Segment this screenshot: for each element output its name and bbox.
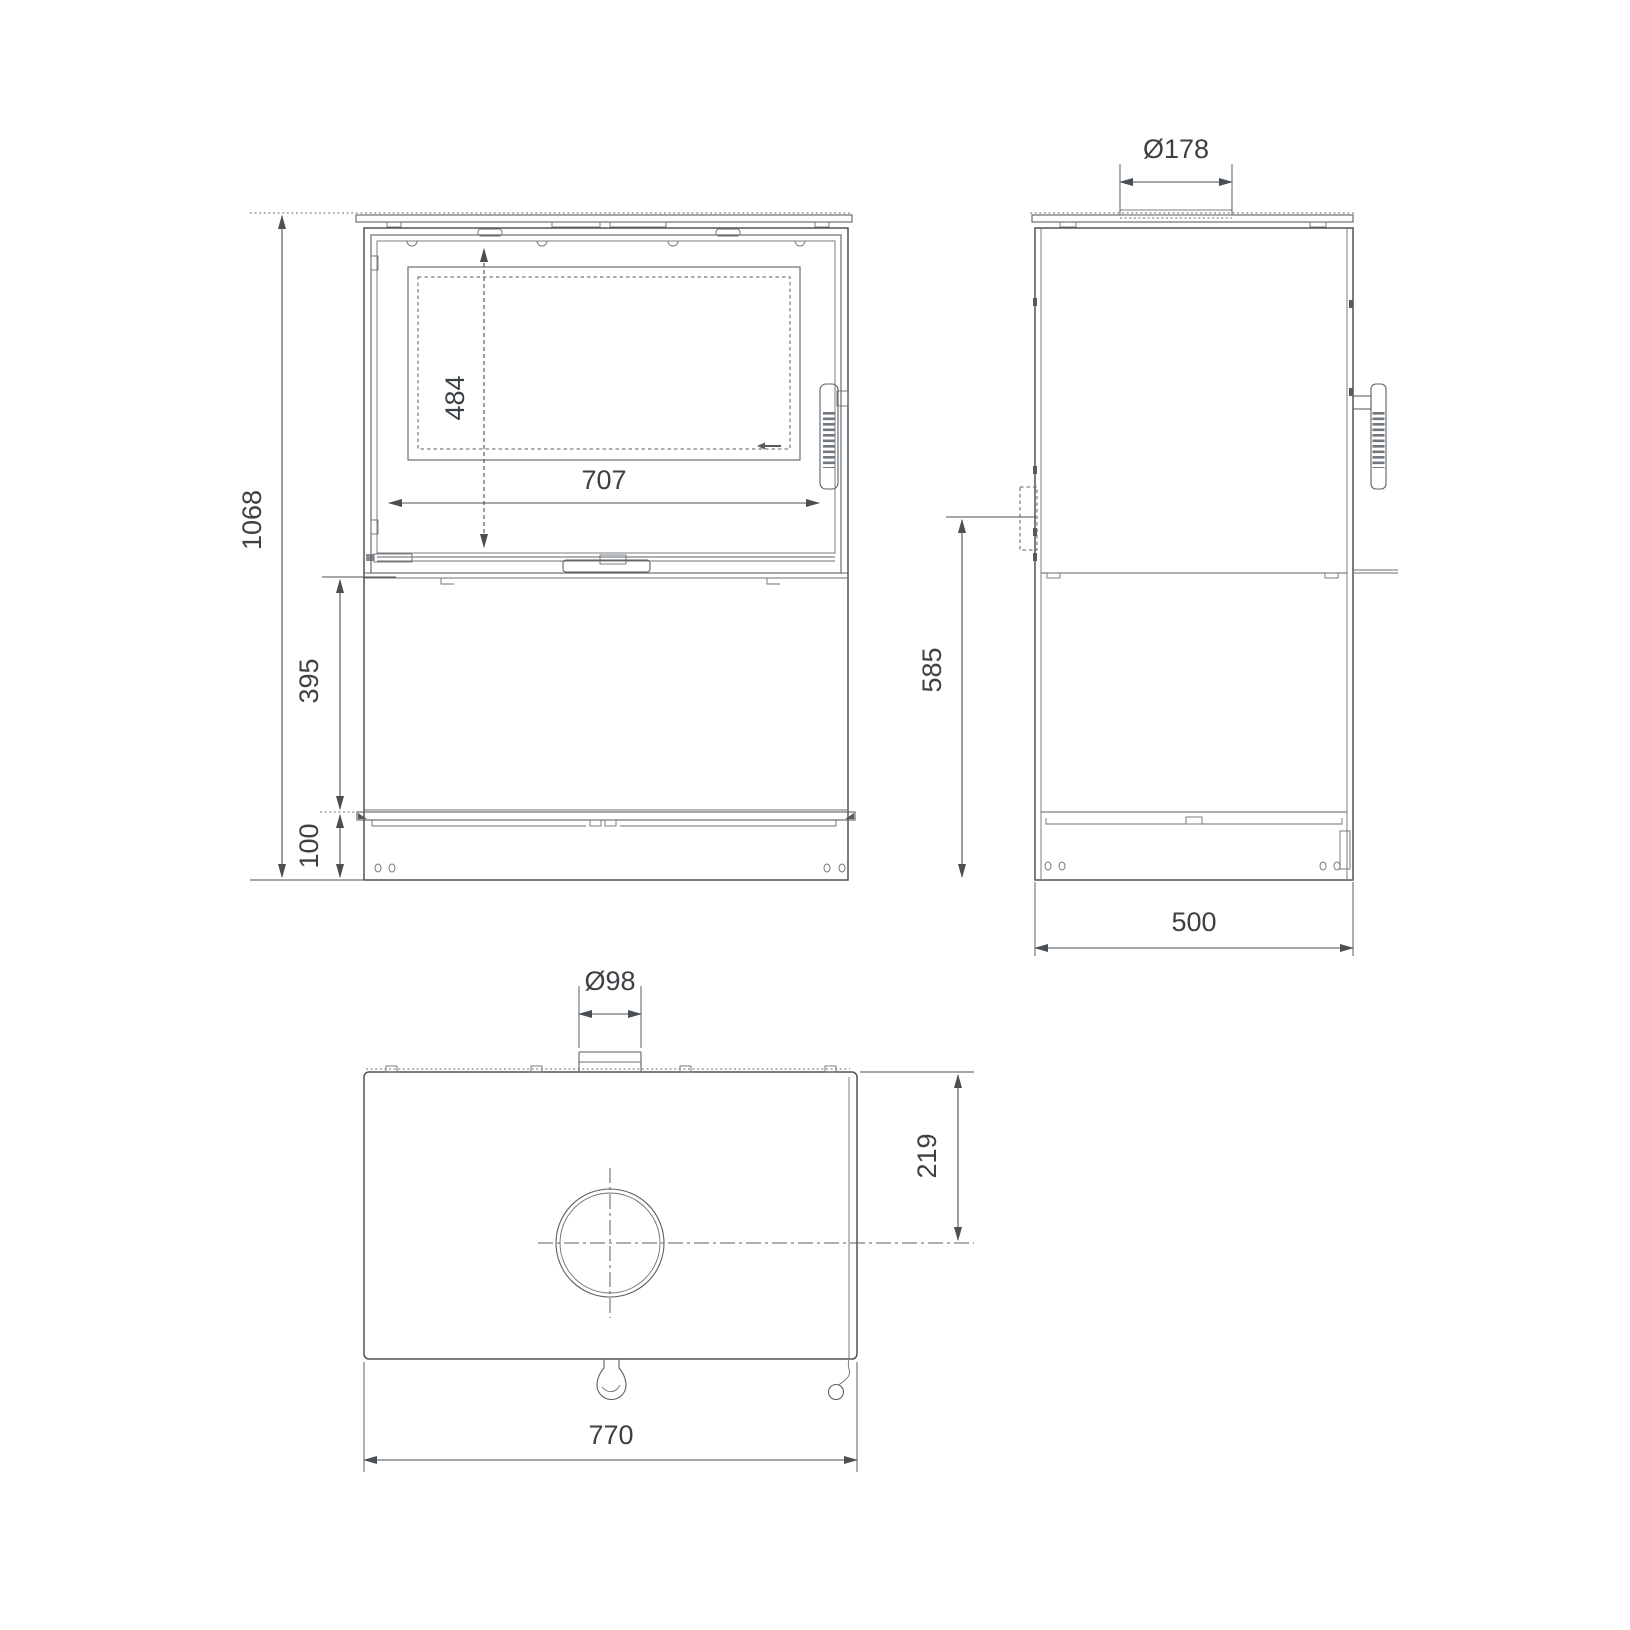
label-damper-axis-height: 585: [917, 647, 947, 692]
plinth-fasteners-side: [1045, 862, 1340, 870]
brand-logo-mark: [757, 443, 781, 450]
side-body-outline: [1035, 228, 1353, 880]
dim-damper-axis-height: 585: [917, 517, 1036, 877]
dim-depth: 500: [1035, 882, 1353, 956]
dim-flue-collar-diameter: Ø178: [1120, 134, 1232, 212]
label-flue-center-from-rear: 219: [912, 1133, 942, 1178]
label-glass-width: 707: [581, 465, 626, 495]
dim-overall-height: 1068: [237, 216, 364, 880]
label-lower-panel-height: 395: [294, 658, 324, 703]
drawing-sheet: 1068 395 100 484 707: [0, 0, 1630, 1630]
label-overall-height: 1068: [237, 490, 267, 550]
glass-inner: [418, 277, 790, 449]
label-width: 770: [588, 1420, 633, 1450]
door-handle-top: [597, 1359, 626, 1400]
door-handle-front: [820, 384, 848, 489]
dim-glass-height: 484: [440, 249, 484, 547]
label-flue-collar-diameter: Ø178: [1143, 134, 1209, 164]
door-latch: [563, 560, 650, 572]
label-rear-outlet-diameter: Ø98: [584, 966, 635, 996]
front-body-outline: [364, 228, 848, 880]
dim-lower-panel-height: 395: [294, 577, 396, 809]
label-plinth-height: 100: [294, 823, 324, 868]
side-view: Ø178 585 500: [917, 134, 1398, 956]
door-handle-side: [1353, 384, 1386, 489]
dim-flue-center-from-rear: 219: [860, 1072, 974, 1240]
dim-width: 770: [364, 1362, 857, 1472]
glass-outer: [408, 267, 800, 460]
dim-glass-width: 707: [389, 465, 819, 503]
label-depth: 500: [1171, 907, 1216, 937]
latch-key-top: [829, 1360, 850, 1400]
technical-drawing: 1068 395 100 484 707: [0, 0, 1630, 1630]
dim-plinth-height: 100: [294, 812, 357, 877]
top-view: Ø98 219 770: [364, 966, 974, 1472]
plinth-fasteners-front: [375, 864, 845, 872]
shelf-band: [357, 812, 855, 820]
dim-rear-outlet-diameter: Ø98: [579, 966, 641, 1048]
front-view: 1068 395 100 484 707: [237, 213, 855, 880]
label-glass-height: 484: [440, 375, 470, 420]
flue-opening-circle: [538, 1168, 974, 1318]
